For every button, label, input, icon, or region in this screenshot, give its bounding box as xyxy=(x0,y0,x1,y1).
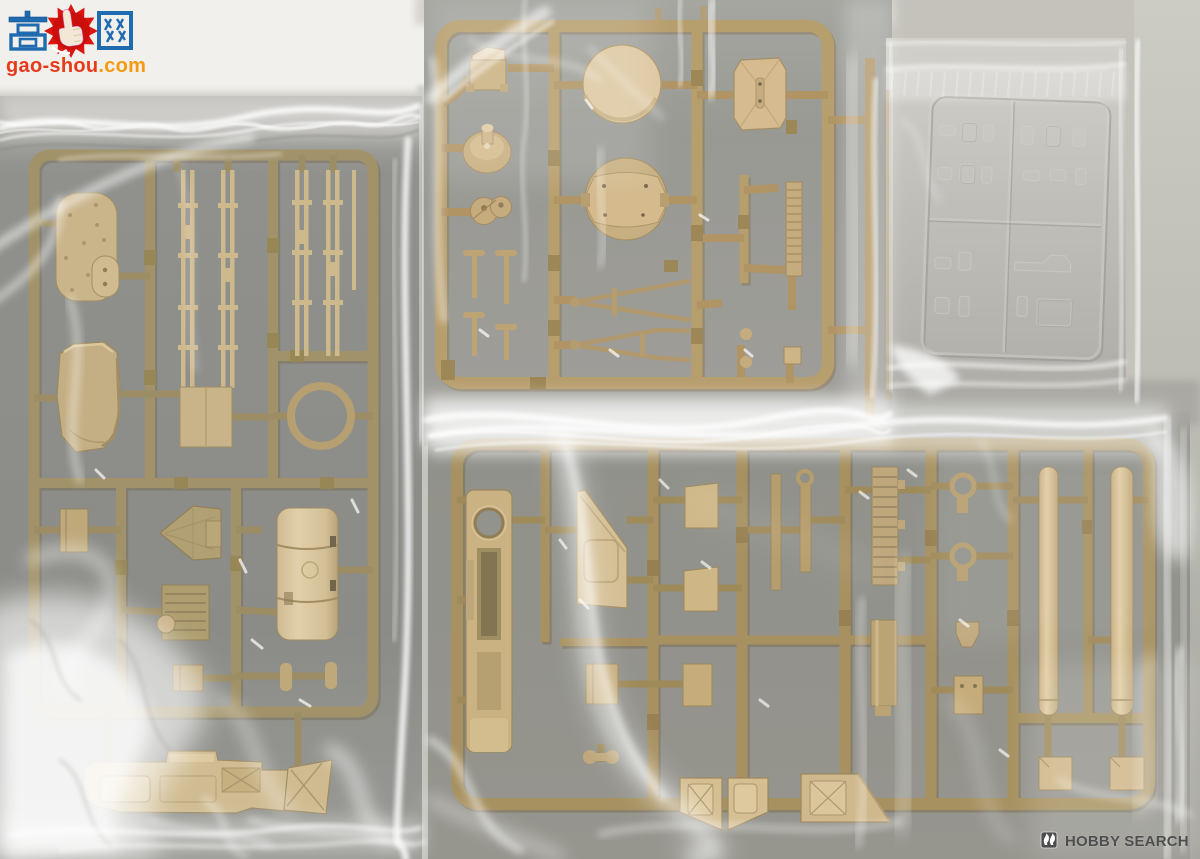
svg-text:HOBBY SEARCH: HOBBY SEARCH xyxy=(1065,833,1189,850)
svg-text:gao-shou.com: gao-shou.com xyxy=(6,55,146,77)
